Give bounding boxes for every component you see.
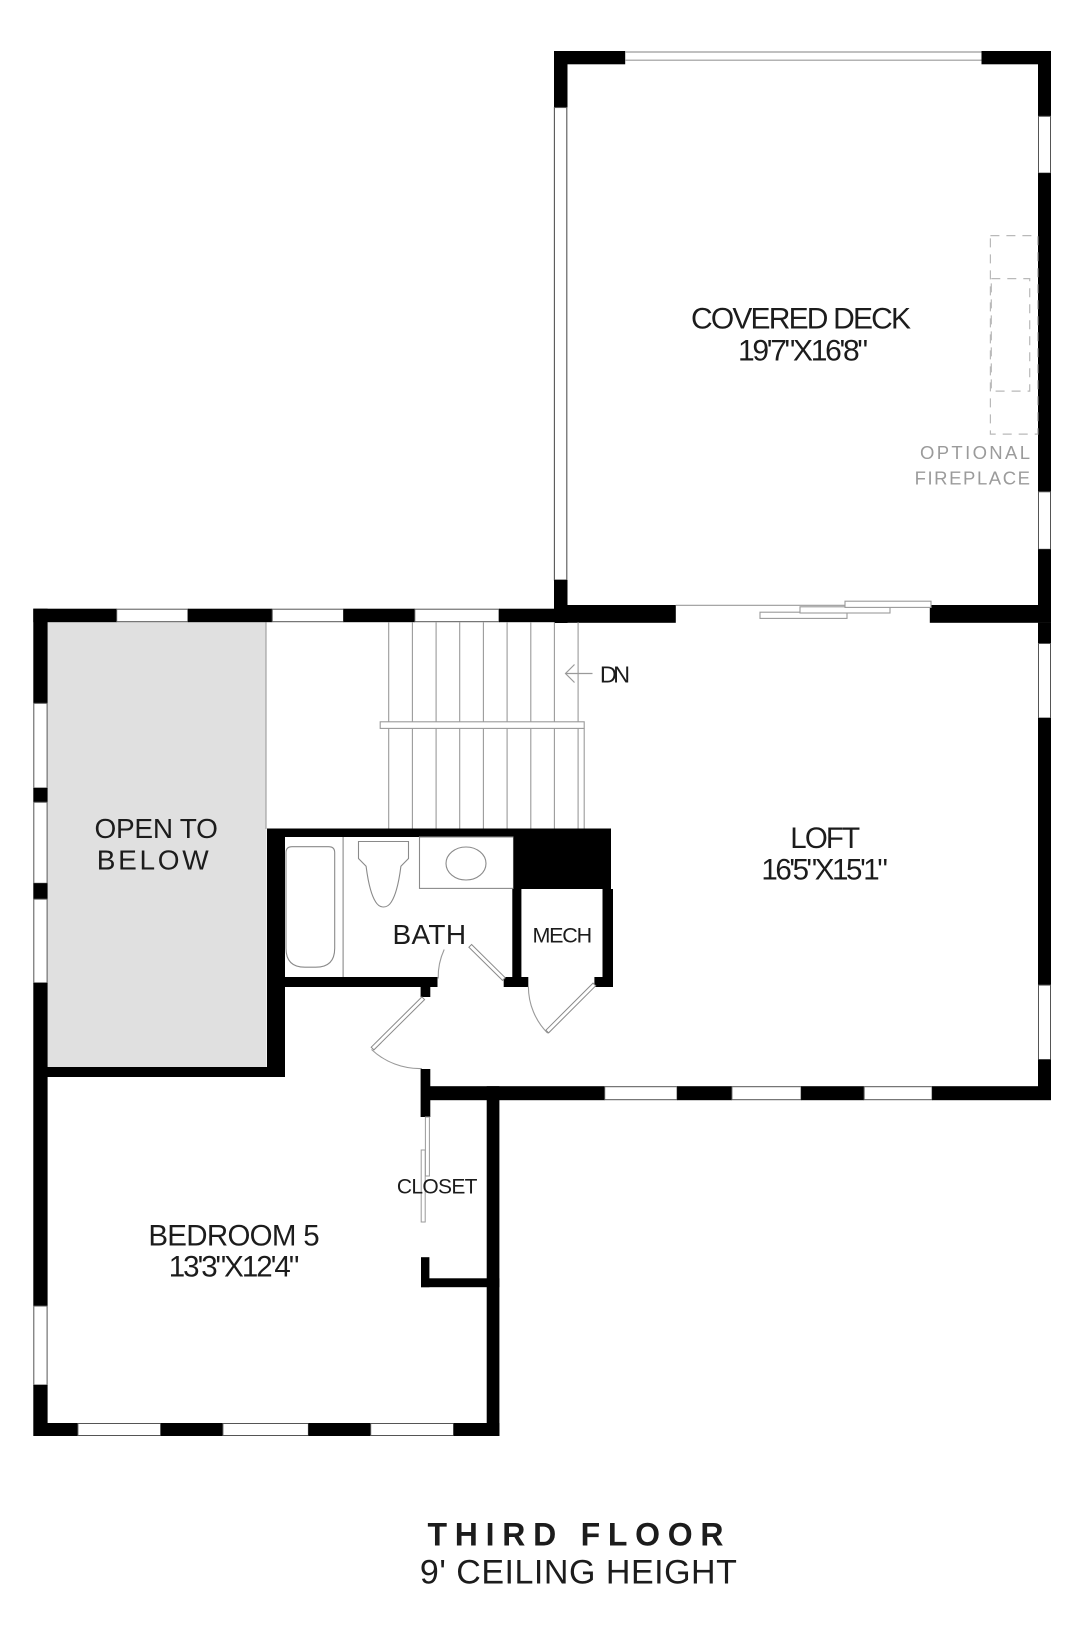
svg-text:13'3"X12'4": 13'3"X12'4": [169, 1251, 300, 1284]
svg-text:OPTIONAL: OPTIONAL: [920, 442, 1030, 463]
svg-text:CLOSET: CLOSET: [397, 1176, 478, 1199]
svg-text:BELOW: BELOW: [97, 844, 210, 875]
svg-text:FIREPLACE: FIREPLACE: [915, 467, 1030, 488]
svg-text:BATH: BATH: [393, 919, 467, 950]
svg-text:DN: DN: [600, 662, 630, 688]
svg-text:COVERED DECK: COVERED DECK: [691, 302, 911, 335]
svg-text:OPEN TO: OPEN TO: [95, 813, 218, 844]
svg-text:LOFT: LOFT: [790, 822, 860, 855]
svg-text:19'7"X16'8": 19'7"X16'8": [738, 335, 868, 368]
svg-text:MECH: MECH: [532, 923, 592, 947]
svg-text:BEDROOM 5: BEDROOM 5: [148, 1220, 319, 1253]
svg-text:9' CEILING HEIGHT: 9' CEILING HEIGHT: [420, 1554, 737, 1592]
svg-text:16'5"X15'1": 16'5"X15'1": [761, 853, 887, 886]
